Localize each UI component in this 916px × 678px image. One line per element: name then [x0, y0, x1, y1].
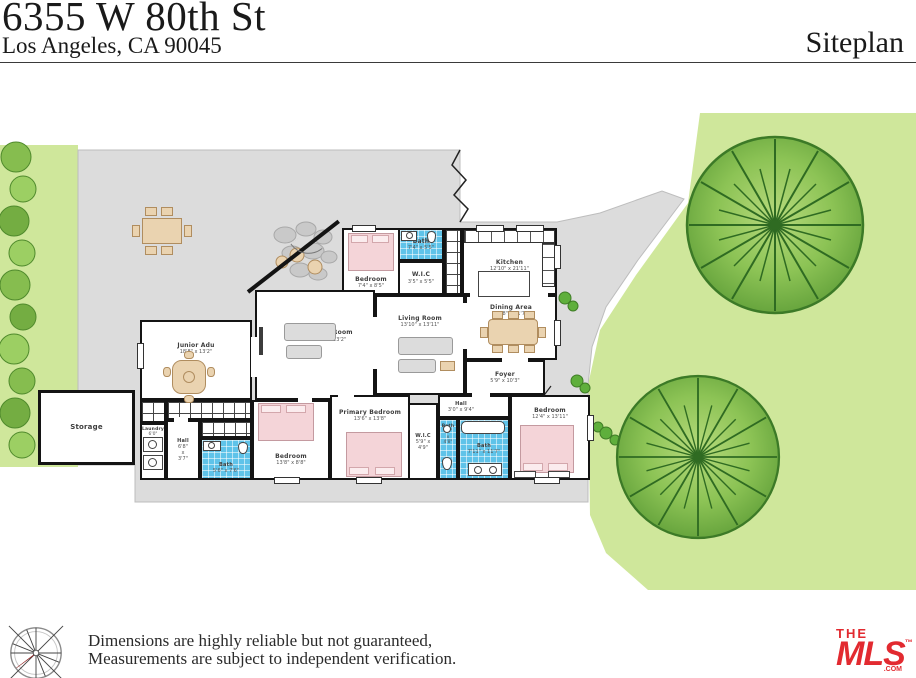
chair	[492, 311, 503, 319]
sofa	[398, 337, 453, 355]
room-dims: 13'8" x 8'8"	[276, 460, 305, 466]
opening	[251, 337, 257, 377]
pillow	[375, 467, 395, 475]
opening	[502, 357, 528, 363]
room-dims: 5'6" x 7'6"	[213, 468, 239, 474]
pillow	[372, 235, 389, 243]
room-dims: 6'8" x 3'7"	[177, 444, 189, 462]
room-dims: 13'6" x 13'8"	[354, 416, 387, 422]
room-label: Living Room	[398, 315, 442, 322]
room-dims: 7'11" x 11'7"	[468, 449, 501, 455]
room-dims: 12'4" x 13'11"	[532, 414, 568, 420]
opening	[472, 392, 490, 398]
chair	[508, 311, 519, 319]
room-dims: 7'4" x 5'5"	[408, 245, 434, 251]
room-label: Kitchen	[496, 259, 523, 266]
window	[554, 320, 561, 346]
room-label: Bedroom	[275, 453, 307, 460]
opening	[350, 292, 364, 298]
sink	[443, 425, 451, 433]
pillow	[523, 463, 543, 471]
room-hall-right: Hall3'0" x 9'4"	[438, 395, 510, 418]
closet-strip	[140, 400, 166, 423]
room-dims: 5'9" x 10'3"	[490, 378, 519, 384]
disclaimer-line1: Dimensions are highly reliable but not g…	[88, 632, 456, 650]
kitchen-island	[478, 271, 530, 297]
sofa	[286, 345, 322, 359]
room-label: Storage	[70, 423, 103, 431]
room-dims: 13'10" x 13'11"	[401, 322, 440, 328]
room-foyer: Foyer5'9" x 10'3"	[465, 360, 545, 395]
room-dims: 5'9" x 4'9"	[415, 439, 430, 451]
sheet-label: Siteplan	[806, 26, 904, 60]
page-subtitle: Los Angeles, CA 90045	[2, 33, 222, 59]
compass-icon	[8, 625, 64, 678]
dresser	[514, 471, 536, 478]
siteplan-page: 6355 W 80th St Los Angeles, CA 90045 Sit…	[0, 0, 916, 678]
room-storage: Storage	[38, 390, 135, 465]
sink	[208, 442, 215, 449]
window	[554, 245, 561, 269]
window	[137, 343, 144, 369]
opening	[338, 392, 354, 398]
chair	[184, 225, 192, 237]
room-wic-top: W.I.C3'5" x 5'5"	[398, 261, 444, 295]
disclaimer: Dimensions are highly reliable but not g…	[88, 632, 456, 668]
chair	[184, 351, 194, 359]
window	[587, 415, 594, 441]
sink	[406, 232, 413, 239]
siteplan-canvas: Bedroom7'4" x 8'5" Bath7'4" x 5'5" W.I.C…	[0, 85, 916, 595]
chair	[492, 345, 503, 353]
outdoor-table	[142, 218, 182, 244]
opening	[373, 317, 379, 369]
chair	[161, 246, 173, 255]
room-hall-left: Hall6'8" x 3'7"	[166, 420, 200, 480]
pillow	[349, 467, 369, 475]
pillow	[261, 405, 281, 413]
dining-table	[488, 319, 538, 345]
washer-door	[148, 440, 157, 449]
pillow	[548, 463, 568, 471]
sink	[489, 466, 497, 474]
pillow	[286, 405, 306, 413]
chair	[524, 345, 535, 353]
chair	[132, 225, 140, 237]
chair	[163, 367, 171, 377]
chair	[538, 327, 546, 338]
room-wic-primary: W.I.C5'9" x 4'9"	[408, 403, 438, 480]
sofa	[284, 323, 336, 341]
disclaimer-line2: Measurements are subject to independent …	[88, 650, 456, 668]
tree	[687, 137, 863, 313]
chair	[161, 207, 173, 216]
sofa	[398, 359, 436, 373]
window	[516, 225, 544, 232]
opening	[174, 417, 188, 423]
window	[274, 477, 300, 484]
room-label: Foyer	[495, 371, 515, 378]
window	[356, 477, 382, 484]
header-divider	[0, 62, 916, 63]
sink	[474, 466, 482, 474]
window	[352, 225, 376, 232]
room-label: W.I.C	[412, 271, 430, 278]
adu-table-center	[183, 371, 195, 383]
chair	[207, 367, 215, 377]
tree	[617, 376, 779, 538]
dryer-door	[148, 458, 157, 467]
bathtub	[461, 421, 505, 434]
chair	[184, 395, 194, 403]
window	[534, 477, 560, 484]
chair	[524, 311, 535, 319]
room-label: Bedroom	[534, 407, 566, 414]
room-label: Primary Bedroom	[339, 409, 401, 416]
pillow	[351, 235, 368, 243]
opening	[462, 303, 468, 349]
chair	[145, 207, 157, 216]
chair	[508, 345, 519, 353]
tv	[259, 327, 263, 355]
window	[476, 225, 504, 232]
mls-logo-main: MLS™	[836, 640, 902, 669]
closet-strip	[444, 228, 462, 295]
chair	[480, 327, 488, 338]
room-dims: 7'4" x 8'5"	[358, 283, 384, 289]
mls-logo: THE MLS™ .COM	[836, 627, 902, 673]
room-dims: 3'0" x 9'4"	[448, 407, 474, 413]
room-label: Junior Adu	[177, 342, 214, 349]
room-label: Bedroom	[355, 276, 387, 283]
coffee-table	[440, 361, 455, 371]
room-dims: 3'5" x 5'5"	[408, 279, 434, 285]
closet-strip	[200, 420, 252, 438]
chair	[145, 246, 157, 255]
